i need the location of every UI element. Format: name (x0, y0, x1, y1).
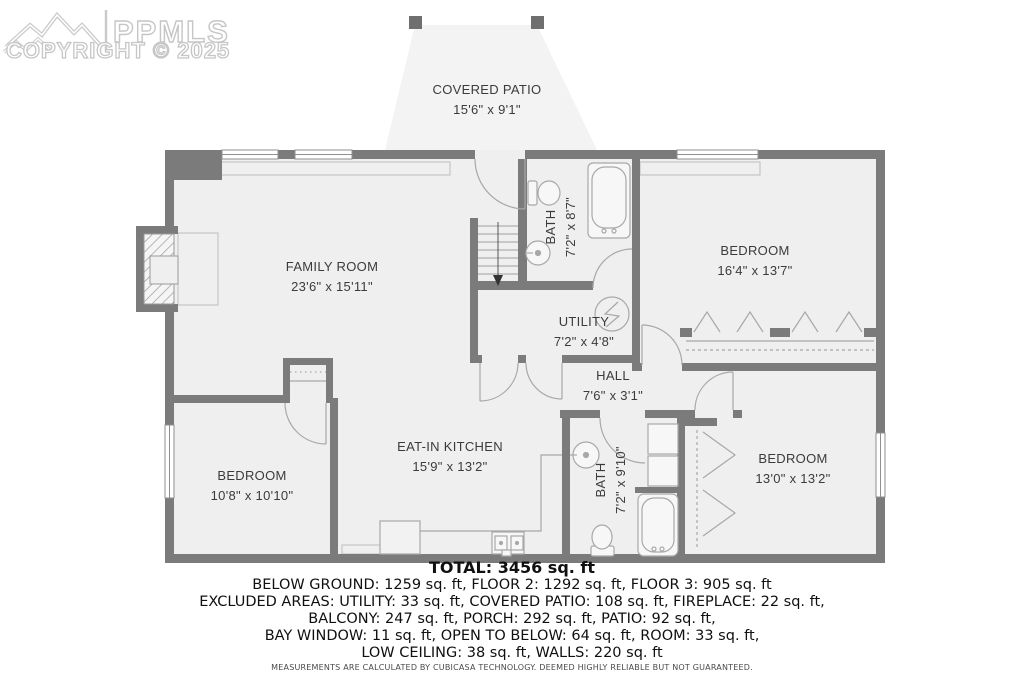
room-label-eat-in-kitchen: EAT-IN KITCHEN 15'9" x 13'2" (397, 437, 503, 477)
fireplace-hearth (144, 234, 178, 304)
stove-icon (380, 521, 420, 554)
room-label-bedroom-bottom-left: BEDROOM 10'8" x 10'10" (211, 466, 294, 506)
summary-line: EXCLUDED AREAS: UTILITY: 33 sq. ft, COVE… (0, 594, 1024, 611)
room-label-bath-upper: BATH 7'2" x 8'7" (541, 197, 581, 257)
summary-line: BALCONY: 247 sq. ft, PORCH: 292 sq. ft, … (0, 611, 1024, 628)
bathtub-icon (588, 163, 630, 238)
room-label-covered-patio: COVERED PATIO 15'6" x 9'1" (433, 80, 542, 120)
room-label-bedroom-top-right: BEDROOM 16'4" x 13'7" (717, 241, 792, 281)
window-icon (222, 150, 278, 159)
patio-post-icon (409, 16, 422, 29)
floorplan-page: PPMLS COPYRIGHT © 2025 COVERED PATIO 15'… (0, 0, 1024, 682)
kitchen-sink-icon (492, 532, 524, 556)
summary-line: BAY WINDOW: 11 sq. ft, OPEN TO BELOW: 64… (0, 628, 1024, 645)
room-label-bedroom-bottom-right: BEDROOM 13'0" x 13'2" (755, 449, 830, 489)
watermark-logo: PPMLS COPYRIGHT © 2025 (4, 10, 230, 63)
summary-disclaimer: MEASUREMENTS ARE CALCULATED BY CUBICASA … (0, 662, 1024, 674)
room-label-hall: HALL 7'6" x 3'1" (583, 366, 643, 406)
bathtub-icon (638, 494, 678, 556)
room-label-bath-lower: BATH 7'2" x 9'10" (591, 446, 631, 514)
window-icon (677, 150, 758, 159)
room-label-utility: UTILITY 7'2" x 4'8" (554, 312, 614, 352)
copyright-text: COPYRIGHT © 2025 (6, 38, 230, 63)
area-summary: TOTAL: 3456 sq. ft BELOW GROUND: 1259 sq… (0, 559, 1024, 674)
patio-post-icon (531, 16, 544, 29)
summary-line: LOW CEILING: 38 sq. ft, WALLS: 220 sq. f… (0, 645, 1024, 662)
room-label-family-room: FAMILY ROOM 23'6" x 15'11" (286, 257, 378, 297)
window-icon (165, 425, 174, 498)
summary-line: BELOW GROUND: 1259 sq. ft, FLOOR 2: 1292… (0, 577, 1024, 594)
counter-ledge (342, 545, 380, 554)
window-icon (876, 433, 885, 497)
summary-total: TOTAL: 3456 sq. ft (0, 559, 1024, 577)
toilet-icon (591, 525, 614, 556)
window-icon (295, 150, 352, 159)
